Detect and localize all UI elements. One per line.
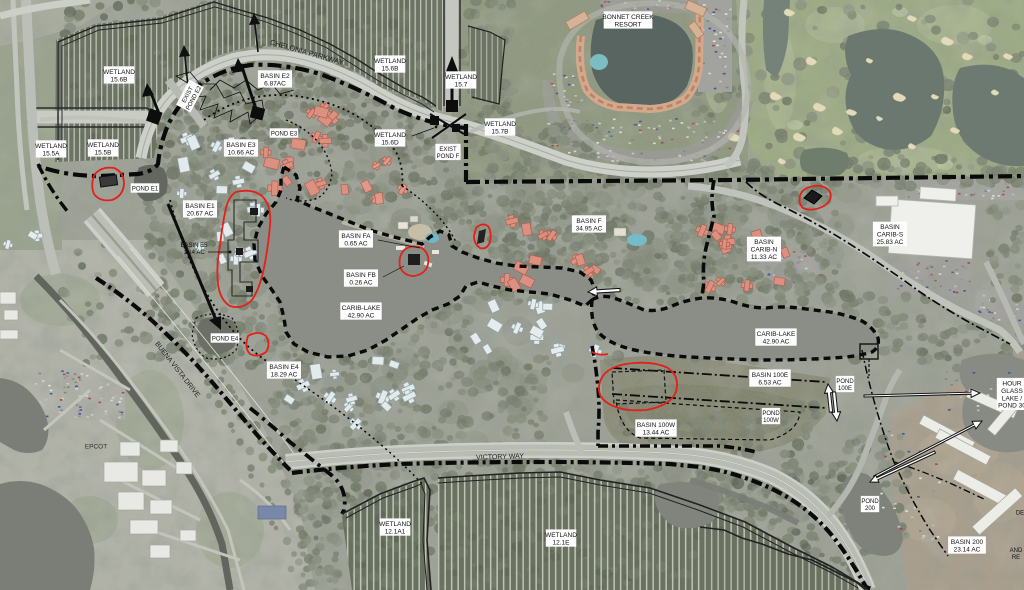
svg-text:6.87AC: 6.87AC bbox=[264, 80, 286, 87]
svg-text:CARIB-N: CARIB-N bbox=[751, 247, 778, 254]
svg-text:6.53 AC: 6.53 AC bbox=[758, 379, 781, 386]
svg-text:WETLAND: WETLAND bbox=[545, 532, 577, 539]
svg-text:CARIB-LAKE: CARIB-LAKE bbox=[342, 305, 381, 312]
svg-text:POND E4: POND E4 bbox=[212, 337, 239, 343]
svg-text:POND: POND bbox=[762, 411, 780, 417]
svg-text:POND: POND bbox=[861, 499, 879, 505]
svg-text:42.90 AC: 42.90 AC bbox=[348, 312, 375, 319]
svg-text:BASIN FA: BASIN FA bbox=[341, 233, 371, 240]
svg-text:BASIN E5: BASIN E5 bbox=[180, 243, 208, 249]
svg-text:POND: POND bbox=[836, 379, 854, 385]
svg-text:BASIN E3: BASIN E3 bbox=[226, 142, 256, 149]
svg-text:WETLAND: WETLAND bbox=[445, 74, 477, 81]
svg-text:20.67 AC: 20.67 AC bbox=[187, 210, 214, 217]
svg-text:34.95 AC: 34.95 AC bbox=[576, 225, 603, 232]
svg-text:15.7B: 15.7B bbox=[492, 128, 509, 135]
svg-text:BASIN FB: BASIN FB bbox=[346, 272, 376, 279]
svg-text:BASIN 200: BASIN 200 bbox=[951, 539, 984, 546]
svg-text:10.66 AC: 10.66 AC bbox=[228, 149, 255, 156]
svg-text:POND F: POND F bbox=[437, 154, 460, 160]
svg-text:100E: 100E bbox=[838, 386, 852, 392]
svg-text:15.6B: 15.6B bbox=[382, 65, 399, 72]
svg-text:EXIST: EXIST bbox=[439, 147, 457, 153]
svg-text:RESORT: RESORT bbox=[615, 21, 642, 28]
svg-text:WETLAND: WETLAND bbox=[484, 121, 516, 128]
svg-text:15.6B: 15.6B bbox=[111, 76, 128, 83]
svg-text:BASIN: BASIN bbox=[754, 239, 774, 246]
svg-text:15.7: 15.7 bbox=[455, 81, 468, 88]
svg-text:GLASS: GLASS bbox=[1001, 388, 1023, 395]
svg-text:15.5B: 15.5B bbox=[95, 149, 112, 156]
svg-text:25.83 AC: 25.83 AC bbox=[877, 239, 904, 246]
svg-text:HOUR: HOUR bbox=[1002, 381, 1021, 388]
svg-text:0.26 AC: 0.26 AC bbox=[349, 279, 372, 286]
svg-text:23.14 AC: 23.14 AC bbox=[954, 546, 981, 553]
svg-text:EPCOT: EPCOT bbox=[85, 444, 107, 451]
svg-text:POND E3: POND E3 bbox=[271, 132, 298, 138]
svg-text:BASIN E2: BASIN E2 bbox=[260, 73, 290, 80]
svg-text:BASIN 100E: BASIN 100E bbox=[752, 372, 789, 379]
svg-text:12.1A1: 12.1A1 bbox=[385, 528, 406, 535]
svg-text:200: 200 bbox=[865, 506, 876, 512]
svg-text:BASIN E4: BASIN E4 bbox=[269, 364, 299, 371]
svg-text:BONNET CREEK: BONNET CREEK bbox=[602, 14, 654, 21]
svg-text:18.29 AC: 18.29 AC bbox=[271, 371, 298, 378]
svg-text:12.1E: 12.1E bbox=[553, 539, 571, 546]
svg-text:BASIN 100W: BASIN 100W bbox=[637, 422, 676, 429]
svg-text:WETLAND: WETLAND bbox=[374, 132, 406, 139]
svg-text:WETLAND: WETLAND bbox=[35, 143, 67, 150]
svg-text:13.44 AC: 13.44 AC bbox=[643, 429, 670, 436]
svg-text:100W: 100W bbox=[763, 418, 779, 424]
svg-text:42.90 AC: 42.90 AC bbox=[763, 338, 790, 345]
svg-text:DE: DE bbox=[1016, 511, 1024, 517]
svg-text:AND: AND bbox=[1010, 548, 1023, 554]
svg-text:WETLAND: WETLAND bbox=[379, 521, 411, 528]
svg-text:WETLAND: WETLAND bbox=[87, 142, 119, 149]
svg-text:15.6D: 15.6D bbox=[381, 139, 399, 146]
svg-text:WETLAND: WETLAND bbox=[103, 69, 135, 76]
svg-text:LAKE /: LAKE / bbox=[1002, 395, 1022, 402]
svg-text:BASIN E1: BASIN E1 bbox=[185, 203, 215, 210]
svg-text:BASIN: BASIN bbox=[880, 224, 900, 231]
svg-text:CARIB-S: CARIB-S bbox=[877, 232, 904, 239]
svg-text:POND 30: POND 30 bbox=[998, 403, 1024, 410]
svg-text:RE: RE bbox=[1012, 555, 1020, 561]
svg-text:WETLAND: WETLAND bbox=[374, 58, 406, 65]
svg-text:15.5A: 15.5A bbox=[43, 150, 61, 157]
svg-text:POND E1: POND E1 bbox=[132, 187, 159, 193]
svg-text:1.14 AC: 1.14 AC bbox=[183, 250, 205, 256]
svg-text:BASIN F: BASIN F bbox=[576, 218, 601, 225]
svg-text:11.33 AC: 11.33 AC bbox=[751, 254, 778, 261]
svg-text:CARIB-LAKE: CARIB-LAKE bbox=[757, 331, 796, 338]
svg-text:0.65 AC: 0.65 AC bbox=[344, 240, 367, 247]
